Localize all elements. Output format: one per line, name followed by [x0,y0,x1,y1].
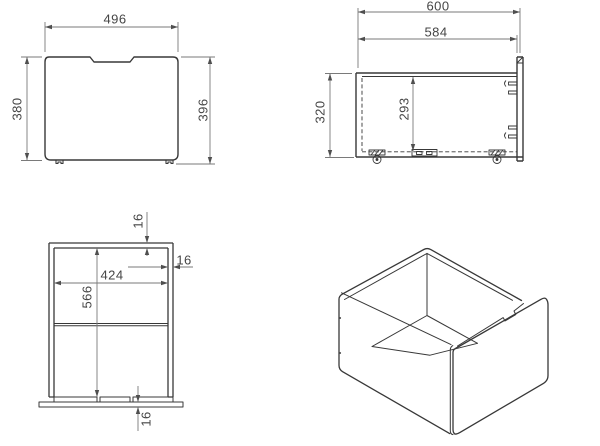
side-hidden-lines [362,78,517,152]
side-center-bracket [412,150,437,157]
front-view-arrowheads [25,25,212,164]
front-view-dimensions [21,22,215,164]
dim-side-height: 320 [314,101,327,124]
iso-inner-rim [345,253,513,300]
drawing-linework [0,0,600,446]
dim-front-height: 380 [11,98,24,121]
technical-drawing-canvas: 496 380 396 600 584 320 293 424 566 16 1… [0,0,600,446]
front-view-linework [45,57,178,164]
plan-view-arrowheads [54,236,180,414]
iso-panel-notch-edge [458,304,524,347]
side-cam-fittings [505,81,518,139]
dim-side-depth-body: 584 [425,26,448,39]
dim-side-height-inner: 293 [398,98,411,121]
dim-plan-thickness-top: 16 [132,213,145,228]
iso-front-panel [453,298,548,434]
side-front-panel [517,57,523,161]
side-body-outline [356,73,523,157]
plan-bottom-rail [39,397,183,407]
dim-plan-thickness-bottom: 16 [140,411,153,426]
side-front-panel-cap [517,58,523,64]
dim-front-height-total: 396 [197,99,210,122]
plan-walls [49,243,173,397]
side-view-linework [356,57,523,164]
side-view-dimensions [325,8,520,158]
iso-left-wall-top-edge [342,293,452,345]
dim-plan-width-inner: 424 [101,269,124,282]
isometric-view-linework [339,249,548,435]
plan-divider [54,324,168,326]
dim-plan-depth-inner: 566 [81,286,94,309]
dim-plan-thickness-side: 16 [176,254,191,267]
front-panel-outline [45,57,178,160]
iso-box-silhouette [339,249,522,434]
plan-view-dimensions [54,212,193,431]
dim-front-width: 496 [104,13,127,26]
dim-side-depth-total: 600 [427,0,450,13]
